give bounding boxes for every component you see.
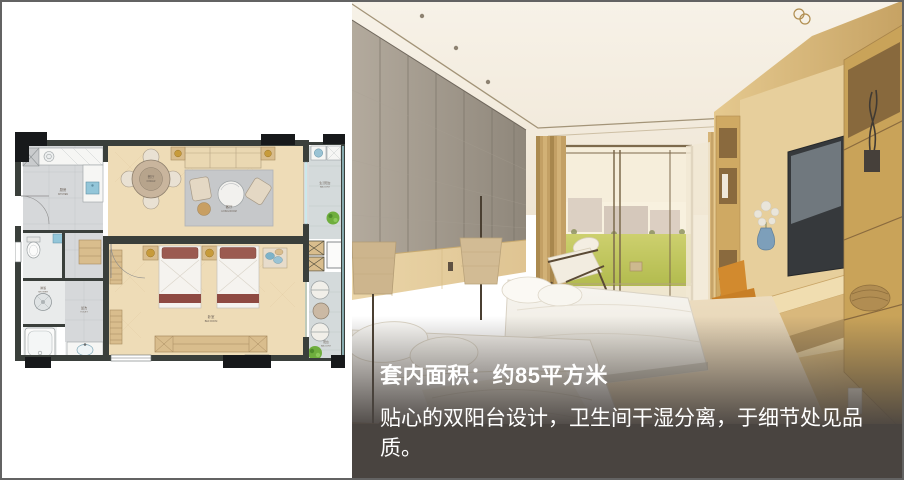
distant-building [604, 206, 648, 234]
room-label-shower-en: SHOWER [38, 292, 48, 294]
accent-chair [189, 176, 212, 201]
table-lamp-icon [175, 150, 182, 157]
ceiling-light-icon [420, 14, 424, 18]
ceiling-light-icon [454, 46, 458, 50]
sofa [185, 147, 261, 168]
bedside-lamp-icon [206, 249, 214, 257]
corner-basin-icon [53, 234, 63, 243]
room-label-shower-cn: 淋浴 [40, 285, 46, 290]
toilet-icon [27, 237, 40, 258]
floorplan-panel: 厨房 KITCHEN 餐厅 DINNER 客厅 LIVING ROOM 卧室 B… [15, 132, 345, 369]
coffee-table [218, 181, 244, 207]
plant-icon [308, 346, 322, 360]
room-label-dining-cn: 餐厅 [148, 174, 155, 179]
ac-unit [327, 242, 343, 268]
caption-description: 贴心的双阳台设计，卫生间干湿分离，于细节处见品质。 [380, 404, 890, 464]
twin-bed-2 [217, 246, 259, 308]
wardrobe [110, 310, 122, 344]
distant-building [568, 198, 602, 232]
kitchen-sink-icon [86, 182, 99, 194]
room-label-washroom-cn: 盥洗 [81, 305, 87, 310]
wall-switch [448, 262, 453, 271]
room-label-bedroom-cn: 卧室 [208, 314, 215, 319]
balcony-stool [630, 262, 642, 271]
floorplan-drawing: 厨房 KITCHEN 餐厅 DINNER 客厅 LIVING ROOM 卧室 B… [15, 132, 345, 369]
bedside-lamp-icon [147, 249, 155, 257]
books [722, 174, 728, 198]
room-label-balcony-cn: 阳台 [323, 340, 329, 344]
room-label-living-en: LIVING ROOM [221, 211, 236, 213]
luggage-bench [263, 248, 287, 268]
room-label-balcony-en: BALCONY [321, 345, 332, 348]
caption-title: 套内面积：约85平方米 [380, 358, 890, 390]
room-label-bedroom-en: BED ROOM [205, 321, 218, 323]
wicker-basket [850, 285, 890, 311]
tv-screen [788, 136, 844, 276]
hall-cabinet [79, 240, 101, 264]
balcony-table [313, 303, 329, 319]
caption-panel: 套内面积：约85平方米 贴心的双阳台设计，卫生间干湿分离，于细节处见品质。 [380, 358, 890, 464]
room-label-living-cn: 客厅 [226, 204, 233, 209]
room-label-kitchen-en: KITCHEN [58, 194, 68, 196]
distant-building [650, 210, 680, 234]
room-label-service-balcony-cn: 生活阳台 [319, 181, 330, 185]
table-lamp-icon [265, 150, 272, 157]
room-label-dining-en: DINNER [147, 181, 156, 183]
living-area [171, 147, 275, 226]
ceiling-light-icon [486, 80, 490, 84]
shower-icon [35, 294, 52, 311]
plant-icon [327, 212, 340, 225]
ottoman [198, 203, 211, 216]
sky [564, 146, 692, 202]
tv-console [155, 336, 267, 352]
cooktop-icon [44, 152, 54, 162]
room-label-kitchen-cn: 厨房 [60, 187, 67, 192]
twin-bed-1 [159, 246, 201, 308]
bathtub [25, 328, 55, 359]
room-label-washroom-en: TOILET [80, 312, 88, 314]
room-label-service-balcony-en: BALCONY [320, 186, 331, 189]
